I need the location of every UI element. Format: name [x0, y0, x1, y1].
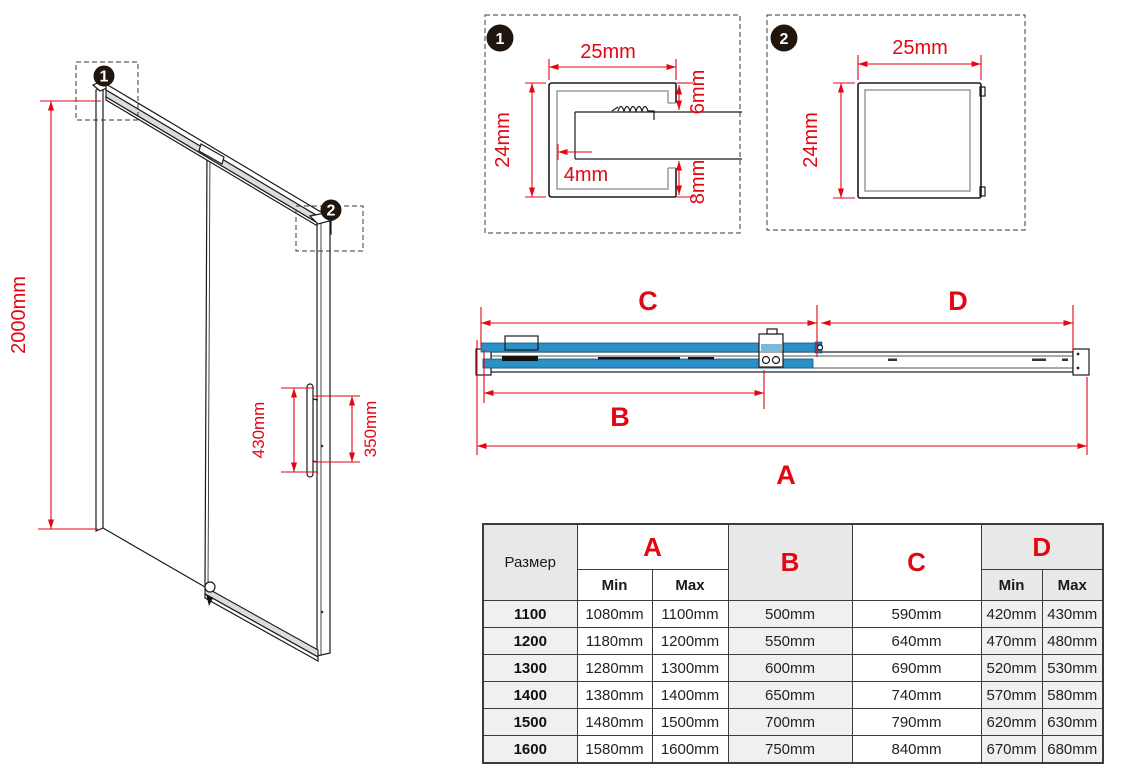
cell-a-min: 1080mm: [577, 601, 652, 628]
cell-a-max: 1600mm: [652, 736, 728, 764]
table-row: 1300 1280mm 1300mm 600mm 690mm 520mm 530…: [483, 655, 1103, 682]
bottom-rail-lower: [205, 594, 318, 661]
size-table: Размер A B C D Min Max Min Max 1100 1080…: [482, 523, 1104, 764]
cell-d-max: 630mm: [1042, 709, 1103, 736]
d-max-header: Max: [1042, 570, 1103, 601]
cell-size: 1500: [483, 709, 577, 736]
cell-d-min: 620mm: [981, 709, 1042, 736]
spec-sheet: 1 2 2000mm 430mm 350mm: [0, 0, 1125, 776]
detail-1-badge: 1: [496, 31, 505, 48]
detail-view-1: 1 25mm 24mm: [485, 15, 742, 233]
cell-d-max: 480mm: [1042, 628, 1103, 655]
cell-c: 840mm: [852, 736, 981, 764]
dimension-height: 2000mm: [8, 101, 101, 529]
post-profile-section: [858, 83, 985, 198]
post-screw-dot: [321, 445, 324, 448]
cell-c: 590mm: [852, 601, 981, 628]
bottom-rail: [205, 587, 318, 657]
table-row: 1100 1080mm 1100mm 500mm 590mm 420mm 430…: [483, 601, 1103, 628]
cell-d-max: 580mm: [1042, 682, 1103, 709]
cell-a-max: 1400mm: [652, 682, 728, 709]
detail-2-height-label: 24mm: [800, 112, 822, 168]
cell-size: 1100: [483, 601, 577, 628]
cell-a-min: 1580mm: [577, 736, 652, 764]
cell-b: 600mm: [728, 655, 852, 682]
cell-a-max: 1200mm: [652, 628, 728, 655]
cell-a-min: 1280mm: [577, 655, 652, 682]
glass-insert: [575, 112, 742, 159]
cell-c: 640mm: [852, 628, 981, 655]
dim-b-label: B: [610, 402, 630, 432]
table-row: 1200 1180mm 1200mm 550mm 640mm 470mm 480…: [483, 628, 1103, 655]
door-handle: [307, 384, 313, 477]
a-max-header: Max: [652, 570, 728, 601]
spring-clip: [612, 107, 654, 121]
end-stopper: [818, 345, 823, 350]
cell-b: 550mm: [728, 628, 852, 655]
cell-c: 690mm: [852, 655, 981, 682]
callout-2-number: 2: [327, 203, 336, 220]
detail-2-dimensions: 25mm 24mm: [800, 37, 981, 198]
dim-a-label: A: [776, 460, 796, 490]
detail-2-width-label: 25mm: [892, 37, 948, 59]
cell-b: 650mm: [728, 682, 852, 709]
handle-spacing-label: 350mm: [361, 401, 380, 458]
size-header: Размер: [483, 524, 577, 601]
cell-size: 1200: [483, 628, 577, 655]
detail-1-height-label: 24mm: [492, 112, 514, 168]
cell-c: 790mm: [852, 709, 981, 736]
cell-d-max: 680mm: [1042, 736, 1103, 764]
col-b-header: B: [728, 524, 852, 601]
d-min-header: Min: [981, 570, 1042, 601]
cell-d-min: 420mm: [981, 601, 1042, 628]
track-right-cap: [1073, 349, 1089, 375]
cell-size: 1600: [483, 736, 577, 764]
cell-a-max: 1500mm: [652, 709, 728, 736]
detail-1-wall-gap-label: 4mm: [564, 164, 608, 186]
detail-2-badge: 2: [780, 31, 789, 48]
bottom-roller: [205, 582, 215, 592]
cell-size: 1400: [483, 682, 577, 709]
cell-a-min: 1380mm: [577, 682, 652, 709]
roller-block: [502, 356, 538, 361]
col-d-header: D: [981, 524, 1103, 570]
roller-strip: [688, 357, 714, 360]
cell-a-max: 1300mm: [652, 655, 728, 682]
cell-a-max: 1100mm: [652, 601, 728, 628]
cell-b: 700mm: [728, 709, 852, 736]
height-label: 2000mm: [8, 276, 30, 354]
col-a-header: A: [577, 524, 728, 570]
roller-carriage: [759, 329, 783, 367]
dim-c-label: C: [638, 286, 658, 316]
cell-d-min: 520mm: [981, 655, 1042, 682]
top-rail-lower: [106, 97, 331, 234]
cell-d-min: 570mm: [981, 682, 1042, 709]
col-c-header: C: [852, 524, 981, 601]
cell-d-min: 470mm: [981, 628, 1042, 655]
cell-d-min: 670mm: [981, 736, 1042, 764]
table-row: 1500 1480mm 1500mm 700mm 790mm 620mm 630…: [483, 709, 1103, 736]
fixed-panel-edge: [205, 149, 207, 587]
roller-strip: [598, 357, 680, 360]
dim-d-label: D: [948, 286, 968, 316]
callout-1-number: 1: [100, 69, 109, 86]
a-min-header: Min: [577, 570, 652, 601]
cell-b: 500mm: [728, 601, 852, 628]
cell-c: 740mm: [852, 682, 981, 709]
glass-bottom-edge: [103, 528, 205, 587]
cell-a-min: 1480mm: [577, 709, 652, 736]
cell-a-min: 1180mm: [577, 628, 652, 655]
wall-profile: [96, 87, 103, 531]
cell-b: 750mm: [728, 736, 852, 764]
cell-d-max: 530mm: [1042, 655, 1103, 682]
detail-1-bottom-inset-label: 8mm: [687, 160, 709, 204]
door-isometric-view: 1 2 2000mm 430mm 350mm: [8, 62, 380, 661]
section-view: C D B A: [476, 286, 1089, 490]
table-row: 1600 1580mm 1600mm 750mm 840mm 670mm 680…: [483, 736, 1103, 764]
cell-size: 1300: [483, 655, 577, 682]
table-row: 1400 1380mm 1400mm 650mm 740mm 570mm 580…: [483, 682, 1103, 709]
post-screw-dot: [321, 611, 324, 614]
door-post: [317, 221, 330, 656]
dimension-d: D: [821, 286, 1073, 351]
cell-d-max: 430mm: [1042, 601, 1103, 628]
fixed-panel-edge-inner: [208, 150, 210, 587]
detail-view-2: 2 25mm 24mm: [767, 15, 1025, 230]
detail-1-top-inset-label: 6mm: [687, 70, 709, 114]
detail-1-width-label: 25mm: [580, 41, 636, 63]
table-header-row: Размер A B C D: [483, 524, 1103, 570]
handle-length-label: 430mm: [249, 402, 268, 459]
